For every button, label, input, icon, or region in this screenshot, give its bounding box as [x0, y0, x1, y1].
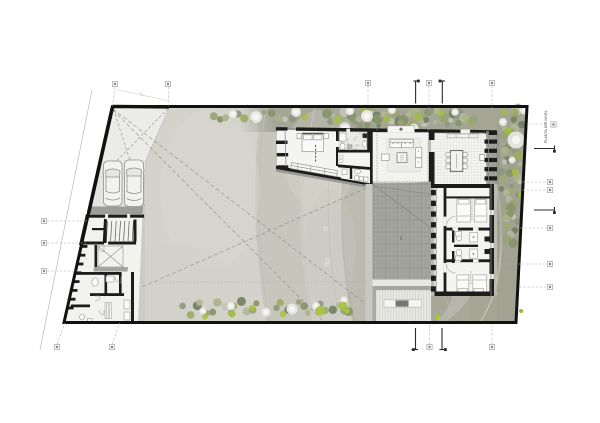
svg-text:PLANTA 1ER NIVEL: PLANTA 1ER NIVEL	[544, 110, 548, 143]
